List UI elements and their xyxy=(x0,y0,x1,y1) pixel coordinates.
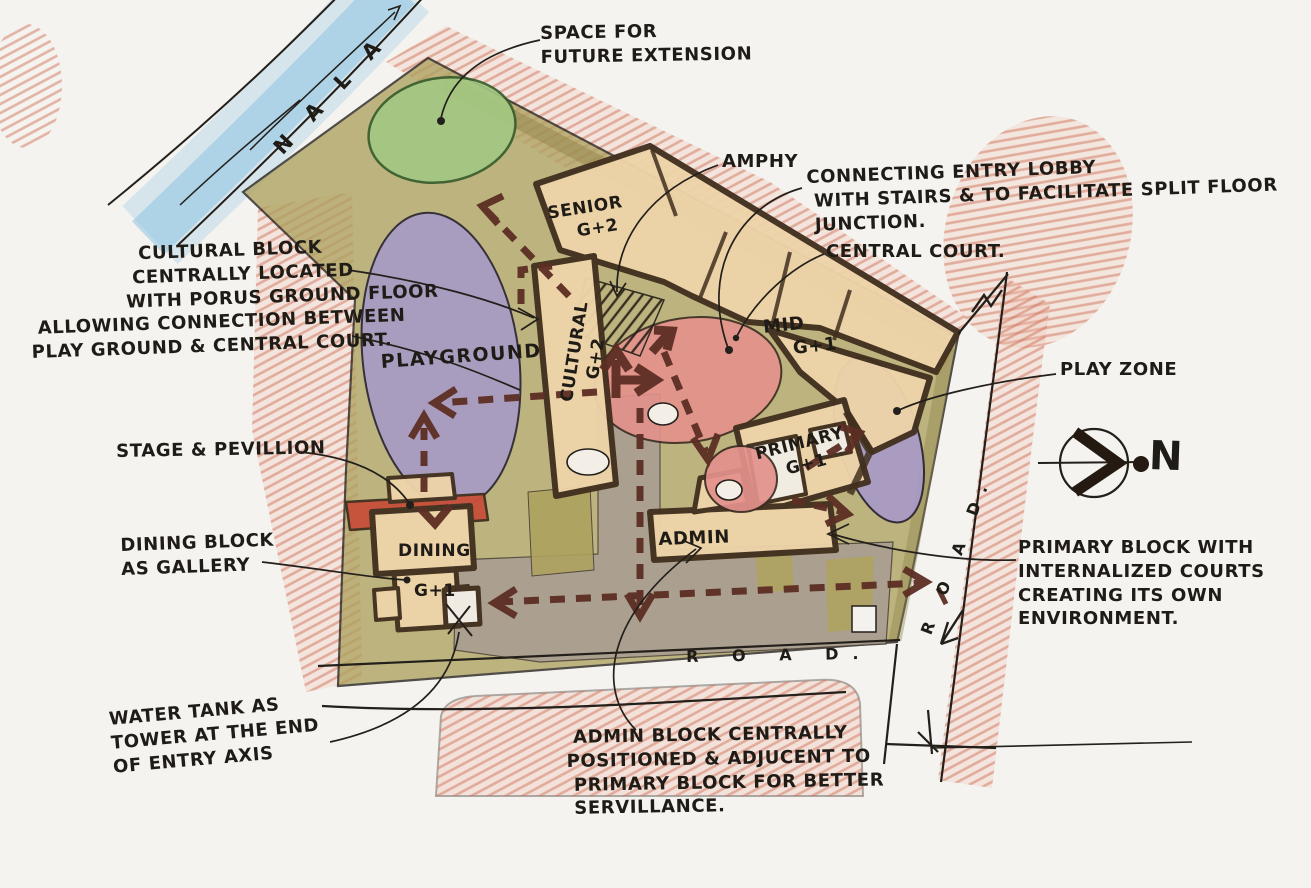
admin-note: ADMIN BLOCK CENTRALLY POSITIONED & ADJUC… xyxy=(566,720,885,821)
leader-dining-dot xyxy=(404,577,411,584)
play-zone-label: PLAY ZONE xyxy=(1060,358,1177,382)
mid-block-label: MID G+1 xyxy=(762,309,838,364)
admin-block-label: ADMIN xyxy=(658,526,730,552)
hatch-corner xyxy=(0,24,62,148)
axis-oval xyxy=(567,449,609,475)
site-plan-sketch: N A L A SPACE FOR FUTURE EXTENSION AMPHY… xyxy=(0,0,1311,888)
cultural-note: CULTURAL BLOCK CENTRALLY LOCATED WITH PO… xyxy=(28,232,441,365)
bottomright-road-end xyxy=(928,710,932,754)
compass-line xyxy=(1038,462,1146,463)
dining-floors-label: G+1 xyxy=(414,580,456,602)
primary-note: PRIMARY BLOCK WITH INTERNALIZED COURTS C… xyxy=(1018,536,1265,631)
court-circle-inner xyxy=(716,480,742,500)
leader-court-dot xyxy=(733,335,739,341)
leader-stage-dot xyxy=(406,501,414,509)
north-compass xyxy=(1038,429,1149,497)
central-court-oval xyxy=(648,403,678,425)
leader-future-dot xyxy=(437,117,445,125)
future-extension-note: SPACE FOR FUTURE EXTENSION xyxy=(540,18,752,69)
north-label: N xyxy=(1148,430,1184,484)
dining-note: DINING BLOCK AS GALLERY xyxy=(120,529,275,582)
compass-dot xyxy=(1133,456,1149,472)
leader-lobby-dot xyxy=(725,346,733,354)
bottomright-break-tick xyxy=(918,732,938,752)
right-road-inner-lower xyxy=(884,644,897,764)
plaza-gate xyxy=(852,606,876,632)
central-court-label: CENTRAL COURT. xyxy=(826,240,1005,264)
road-bottom-label: R O A D. xyxy=(686,643,873,667)
stage-note: STAGE & PEVILLION xyxy=(116,436,326,463)
amphy-label: AMPHY xyxy=(722,150,798,174)
leader-playzone-dot xyxy=(893,407,901,415)
dining-annex-left xyxy=(374,588,400,620)
plaza-island-1 xyxy=(528,486,594,576)
dining-block-label: DINING xyxy=(398,540,471,562)
